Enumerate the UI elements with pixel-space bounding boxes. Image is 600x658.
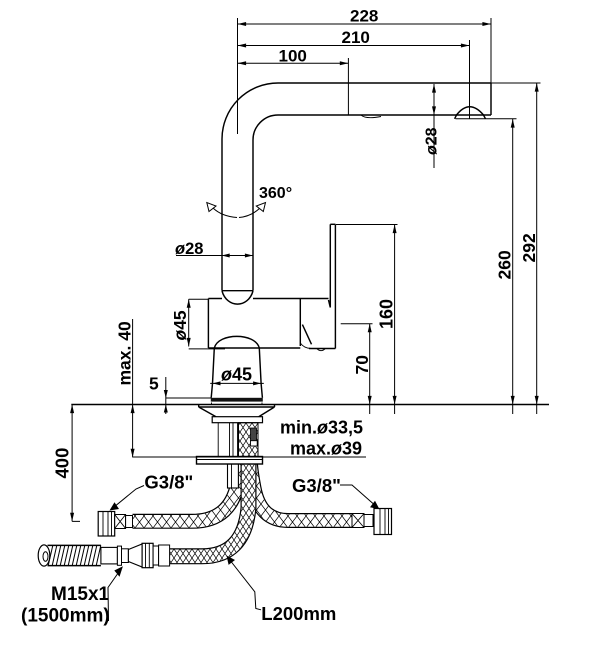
svg-text:100: 100: [279, 47, 307, 66]
svg-text:5: 5: [149, 374, 159, 394]
svg-text:ø28: ø28: [175, 240, 203, 258]
svg-text:ø45: ø45: [221, 365, 252, 385]
svg-text:M15x1: M15x1: [51, 584, 110, 605]
svg-text:400: 400: [52, 448, 73, 479]
svg-text:ø28: ø28: [424, 127, 441, 155]
svg-text:ø45: ø45: [170, 310, 190, 340]
svg-text:160: 160: [377, 299, 397, 329]
svg-text:210: 210: [342, 28, 370, 47]
svg-text:(1500mm): (1500mm): [21, 606, 110, 627]
svg-text:G3/8": G3/8": [292, 475, 341, 496]
svg-text:70: 70: [352, 355, 372, 375]
svg-text:292: 292: [519, 233, 539, 262]
svg-text:260: 260: [495, 250, 515, 279]
svg-text:max. 40: max. 40: [115, 321, 135, 385]
svg-text:L200mm: L200mm: [261, 603, 336, 624]
svg-text:360°: 360°: [259, 185, 292, 202]
svg-text:min.ø33,5: min.ø33,5: [280, 418, 363, 438]
svg-text:G3/8": G3/8": [144, 472, 193, 493]
svg-text:228: 228: [350, 7, 378, 26]
svg-text:max.ø39: max.ø39: [290, 439, 362, 459]
